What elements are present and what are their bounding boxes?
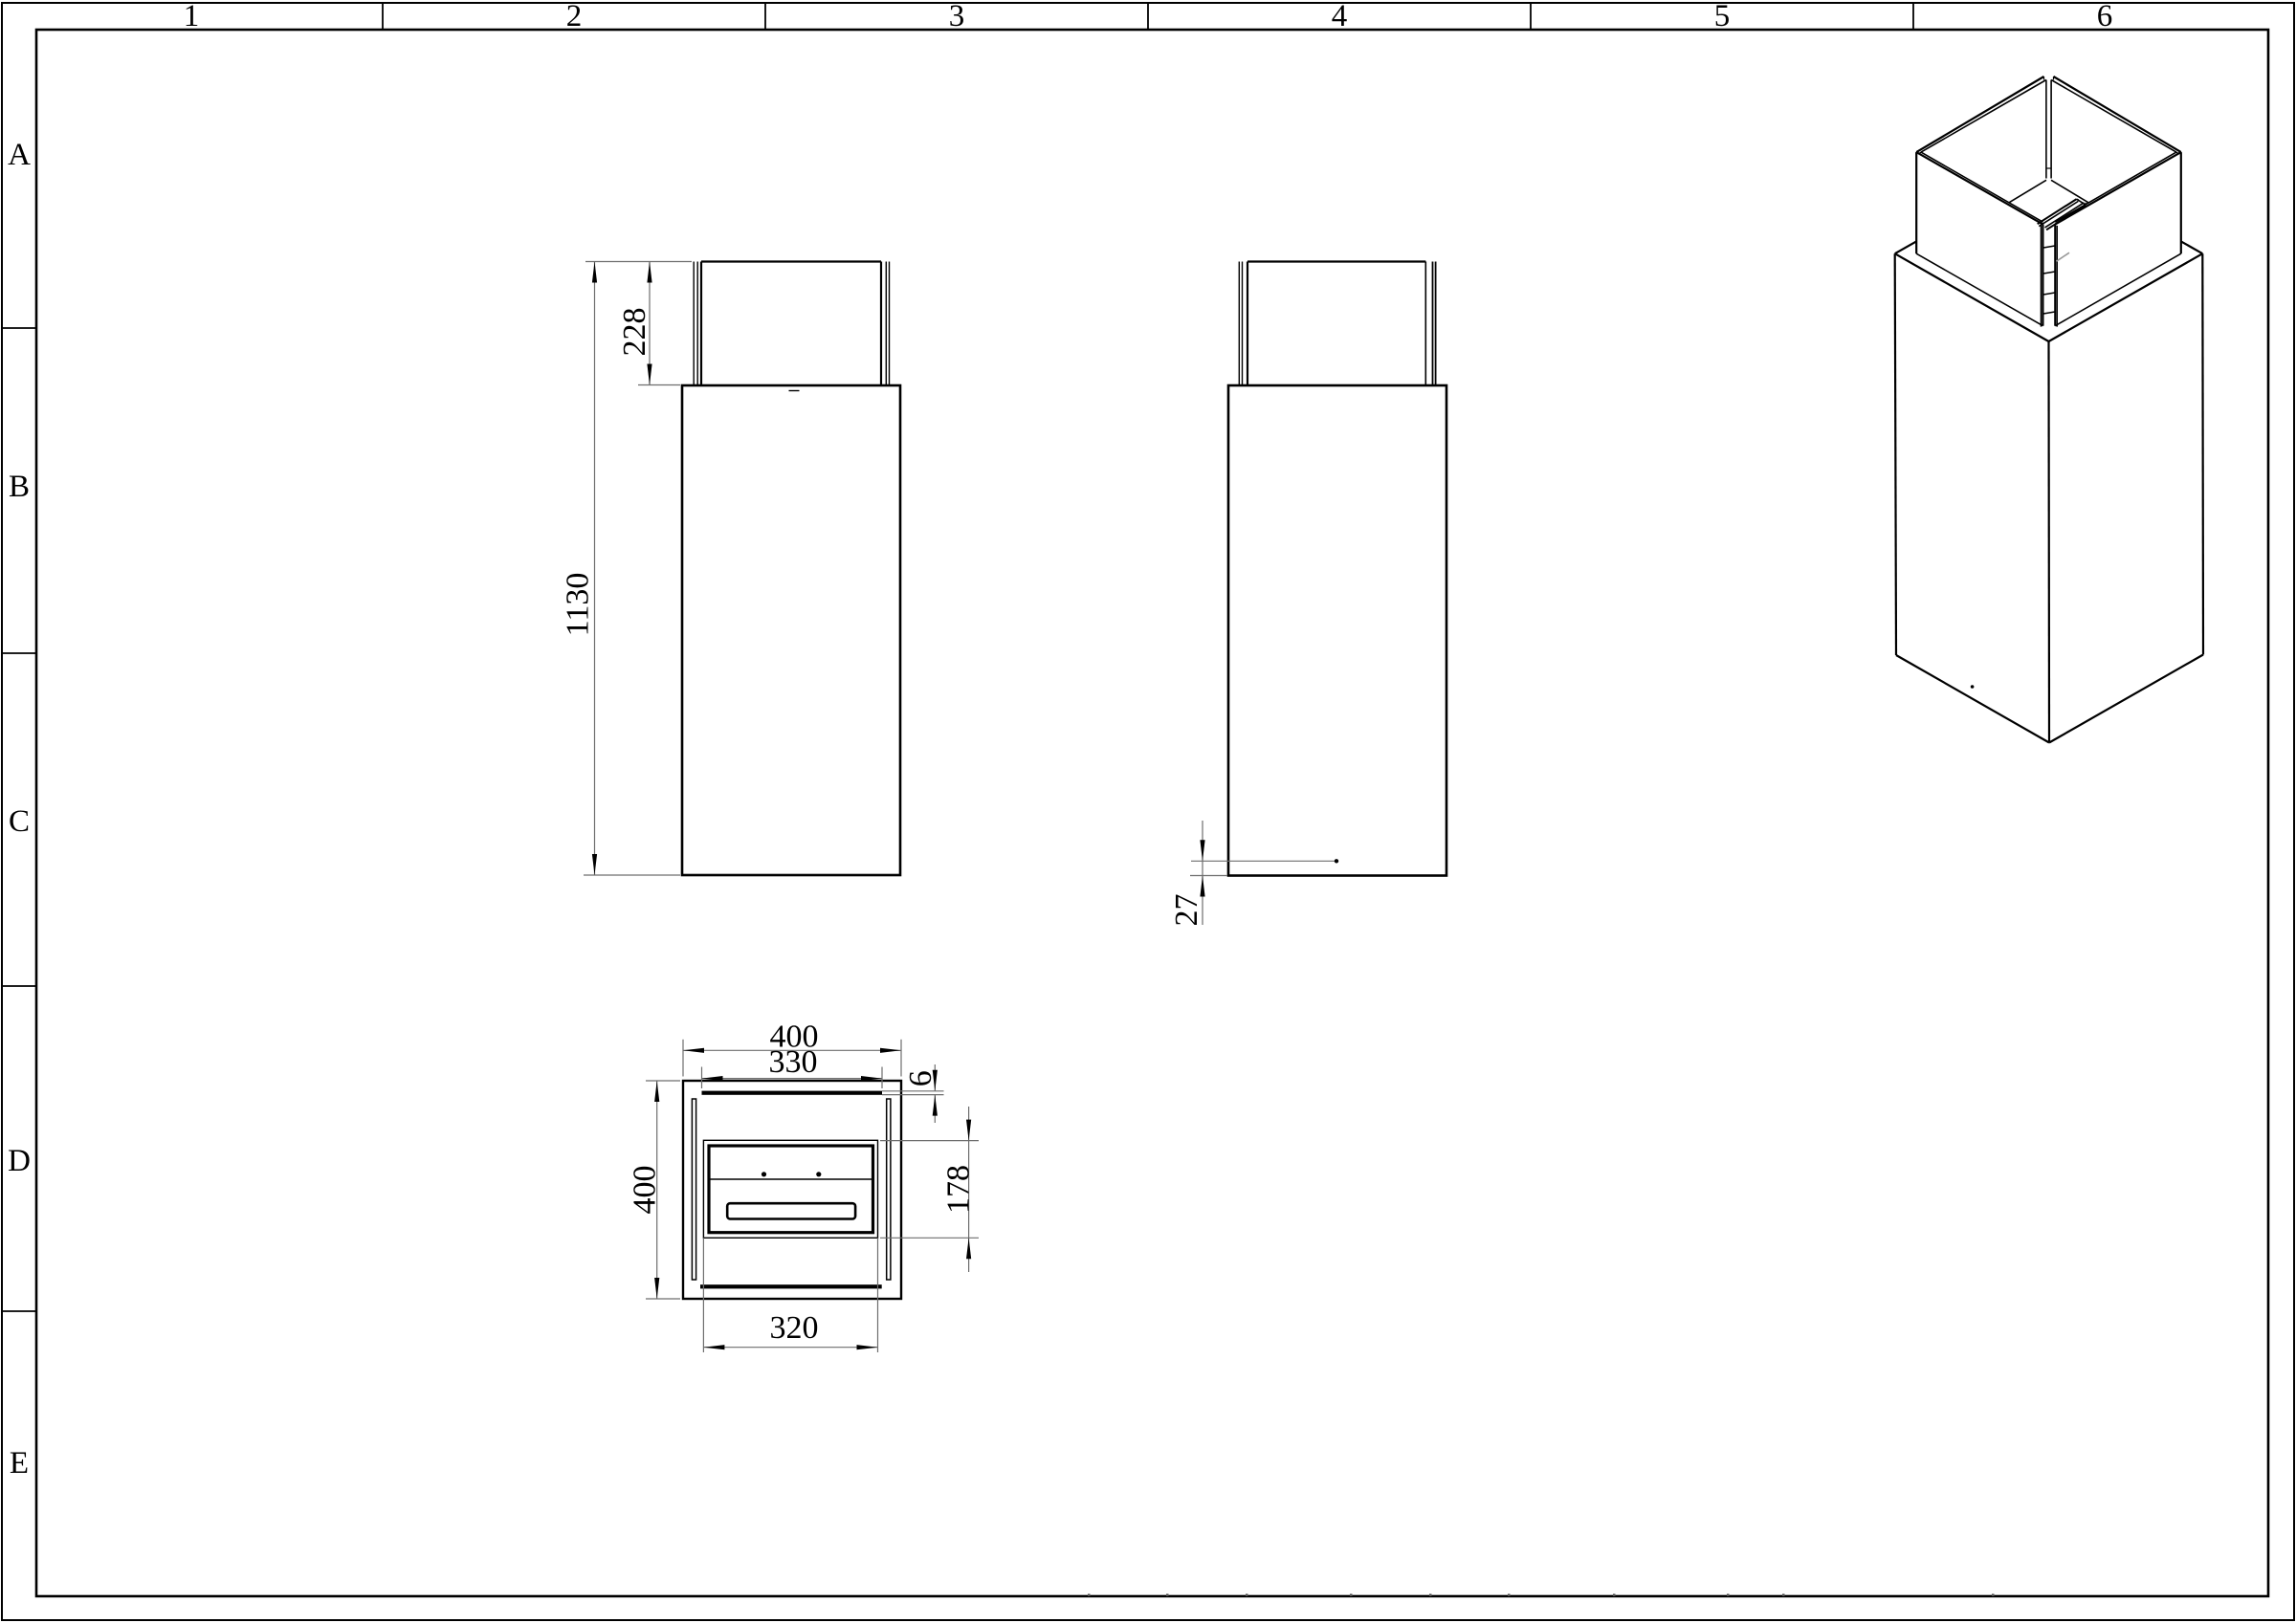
svg-text:2: 2: [566, 0, 583, 33]
svg-text:400: 400: [628, 1166, 663, 1215]
svg-text:B: B: [9, 470, 30, 504]
svg-text:6: 6: [2097, 0, 2113, 33]
svg-text:6: 6: [903, 1070, 938, 1086]
svg-text:A: A: [8, 138, 31, 172]
svg-text:228: 228: [617, 308, 652, 357]
svg-text:27: 27: [1169, 894, 1204, 927]
svg-text:C: C: [9, 804, 30, 839]
svg-text:D: D: [8, 1144, 31, 1178]
svg-text:3: 3: [949, 0, 965, 33]
svg-text:178: 178: [941, 1165, 977, 1214]
svg-text:330: 330: [769, 1044, 818, 1080]
svg-text:1: 1: [184, 0, 200, 33]
svg-text:4: 4: [1332, 0, 1348, 33]
svg-text:320: 320: [770, 1310, 819, 1346]
svg-text:E: E: [10, 1446, 29, 1480]
svg-text:5: 5: [1714, 0, 1731, 33]
svg-text:1130: 1130: [561, 573, 596, 637]
